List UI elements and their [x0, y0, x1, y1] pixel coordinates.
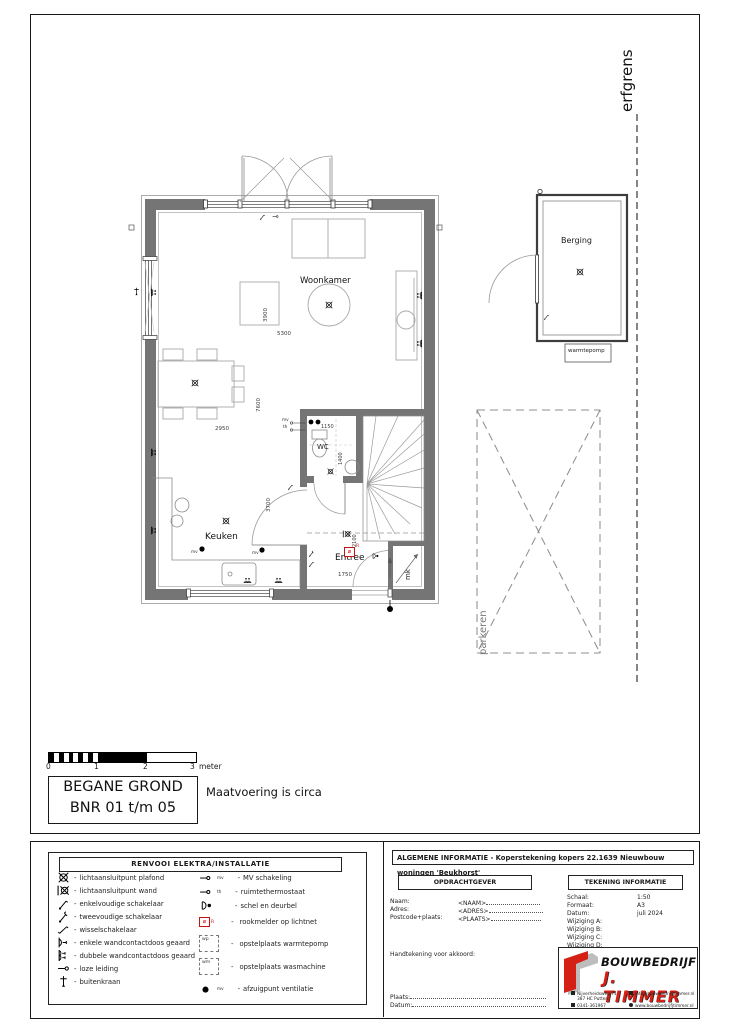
wasmachine-box-icon: wm [199, 958, 219, 975]
dim-1150: 1150 [321, 425, 334, 430]
mv-label-keuken-2: mv [252, 552, 259, 557]
loze-leiding-icon [57, 962, 70, 975]
algemene-informatie-bar: ALGEMENE INFORMATIE - Koperstekening kop… [392, 850, 694, 865]
formaat-value: A3 [637, 902, 645, 909]
schaal-label: Schaal: [567, 894, 589, 901]
legend-title: RENVOOI ELEKTRA/INSTALLATIE [59, 857, 342, 872]
dim-2950: 2950 [215, 427, 229, 433]
afzuigpunt-icon [199, 982, 212, 995]
woonkamer-label: Woonkamer [300, 277, 351, 286]
datum-value: juli 2024 [637, 910, 663, 917]
opdrachtgever-header: OPDRACHTGEVER [398, 875, 532, 890]
field-plaats-label: Postcode+plaats: [390, 914, 442, 921]
lamp-plafond-icon [57, 871, 70, 884]
company-logo-box: BOUWBEDRIJF J. TIMMER Nijverheidsweg 71 … [558, 947, 698, 1009]
dim-7600: 7600 [257, 398, 263, 412]
scale-tick-1: 1 [94, 763, 99, 771]
scale-tick-2: 2 [143, 763, 148, 771]
wc-label: WC [317, 444, 329, 451]
legend-row: -schel en deurbel [199, 899, 297, 912]
legend-row: -loze leiding [57, 962, 118, 975]
logo-line2: J. TIMMER [603, 968, 697, 1006]
legend-row: wm -opstelplaats wasmachine [199, 958, 326, 975]
mv-label-keuken-1: mv [191, 551, 198, 556]
warmtepomp-label: warmtepomp [568, 349, 605, 355]
dubbele-wandcontactdoos-icon [57, 949, 70, 962]
legend-row: mv -MV schakeling [199, 871, 292, 884]
keuken-label: Keuken [205, 533, 238, 542]
field-adres-label: Adres: [390, 906, 409, 913]
berging-label: Berging [561, 237, 592, 245]
formaat-label: Formaat: [567, 902, 594, 909]
scale-unit: meter [199, 763, 222, 771]
contact-website: www.bouwbedrijfjtimmer.nl [629, 1003, 694, 1009]
field-naam-label: Naam: [390, 898, 410, 905]
legend-row: -lichtaansluitpunt plafond [57, 871, 164, 884]
title-box: BEGANE GROND BNR 01 t/m 05 [48, 776, 198, 824]
maatvoering-note: Maatvoering is circa [206, 786, 322, 798]
wijziging-a-label: Wijziging A: [567, 918, 602, 925]
rookmelder-icon: ⌀ [344, 547, 355, 557]
titleblock-band: RENVOOI ELEKTRA/INSTALLATIE -lichtaanslu… [30, 841, 698, 1017]
enkele-wandcontactdoos-icon [57, 936, 70, 949]
datum-label: Datum: [567, 910, 589, 917]
legend-row: th -ruimtethermostaat [199, 885, 305, 898]
schaal-value: 1:50 [637, 894, 650, 901]
scale-tick-3: 3 [190, 763, 195, 771]
company-logo-icon [562, 951, 602, 995]
wisselschakelaar-icon [57, 923, 70, 936]
dim-3900: 3900 [264, 308, 270, 322]
scale-bar [48, 752, 197, 763]
legend-row: -tweevoudige schakelaar [57, 910, 162, 923]
wijziging-c-label: Wijziging C: [567, 934, 602, 941]
title-line1: BEGANE GROND [49, 777, 197, 798]
legend-row: -wisselschakelaar [57, 923, 137, 936]
legend-row: -dubbele wandcontactdoos geaard [57, 949, 195, 962]
dim-3700: 3700 [267, 498, 273, 512]
legend-box: RENVOOI ELEKTRA/INSTALLATIE -lichtaanslu… [48, 852, 367, 1005]
title-line2: BNR 01 t/m 05 [49, 798, 197, 819]
drawing-sheet: erfgrens parkeren Berging warmtepomp Woo… [0, 0, 730, 1032]
enkelvoudige-schakelaar-icon [57, 897, 70, 910]
legend-row: -buitenkraan [57, 975, 121, 988]
drawing-area-border [30, 14, 700, 834]
contact-email: info@bouwbedrijfjtimmer.nl [629, 991, 694, 997]
mv-schakeling-icon [199, 871, 212, 884]
legend-row: -enkelvoudige schakelaar [57, 897, 164, 910]
tekening-informatie-header: TEKENING INFORMATIE [568, 875, 683, 890]
logo-line1: BOUWBEDRIJF [601, 955, 696, 969]
rookmelder-icon: ⌀ [199, 917, 210, 927]
dim-1750: 1750 [338, 573, 352, 579]
tweevoudige-schakelaar-icon [57, 910, 70, 923]
contact-phone: 0341-361967 [571, 1003, 606, 1009]
datum-row: Datum: [390, 1000, 546, 1009]
mk-label: mk [405, 569, 412, 580]
buitenkraan-icon [57, 975, 70, 988]
handtekening-label: Handtekening voor akkoord: [390, 951, 475, 958]
contact-address2: 387 HC Putten [577, 997, 608, 1002]
field-plaats-value: <PLAATS> [458, 914, 541, 923]
dim-1400: 1400 [339, 452, 344, 465]
erfgrens-label: erfgrens [620, 49, 636, 112]
th-label-wc: th [283, 426, 287, 431]
legend-row: ⌀ R -rookmelder op lichtnet [199, 917, 317, 927]
rookmelder-entree: ⌀R [344, 540, 359, 557]
titleblock-divider [383, 841, 384, 1017]
legend-row: mv -afzuigpunt ventilatie [199, 982, 313, 995]
legend-row: wp -opstelplaats warmtepomp [199, 935, 328, 952]
mv-label-wc: mv [282, 419, 289, 424]
parkeren-label: parkeren [479, 610, 490, 655]
warmtepomp-box-icon: wp [199, 935, 219, 952]
schel-deurbel-icon [199, 899, 212, 912]
ruimtethermostaat-icon [199, 885, 212, 898]
scale-tick-0: 0 [46, 763, 51, 771]
lamp-wand-icon [57, 884, 70, 897]
legend-row: -enkele wandcontactdoos geaard [57, 936, 190, 949]
wijziging-b-label: Wijziging B: [567, 926, 602, 933]
legend-row: -lichtaansluitpunt wand [57, 884, 157, 897]
dim-5300: 5300 [277, 332, 291, 338]
